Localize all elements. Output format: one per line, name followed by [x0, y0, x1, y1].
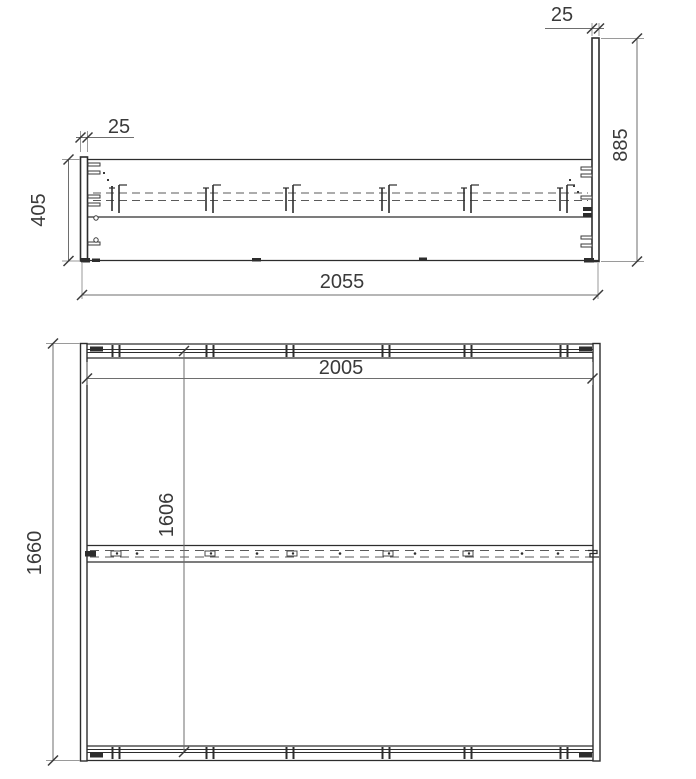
slat-bracket [557, 185, 575, 213]
plan-bottom-rail [87, 746, 593, 761]
dim-label-frame-height: 405 [28, 193, 50, 226]
rail-end-fitting [579, 347, 592, 352]
rail-end-fitting [579, 753, 592, 758]
beam-fastener [205, 551, 215, 556]
slat-bracket-plan [207, 345, 214, 357]
slat-bracket-plan [383, 345, 390, 357]
foot-mark [584, 258, 594, 263]
dim-label-slat-span: 1606 [156, 493, 178, 538]
dim-label-headboard-height: 885 [610, 128, 632, 161]
foot-mark [81, 258, 90, 263]
rail-end-fitting [90, 347, 103, 352]
slat-bracket-plan [113, 345, 120, 357]
dim-headboard-thickness: 25 [545, 4, 604, 36]
slat-bracket [203, 185, 221, 213]
dim-overall-length: 2055 [77, 263, 603, 300]
beam-fastener [287, 551, 297, 556]
headboard-panel [592, 38, 599, 262]
plan-center-beam [85, 546, 599, 563]
dim-label-headboard-thickness: 25 [551, 4, 573, 26]
dim-frame-height: 405 [28, 155, 80, 267]
dim-headboard-height: 885 [601, 34, 644, 267]
dim-label-overall-length: 2055 [320, 271, 365, 293]
footboard-panel [81, 157, 88, 261]
beam-end-fitting [85, 551, 96, 557]
foot-mark [92, 259, 100, 263]
plan-view: 2005 1606 1660 [24, 339, 600, 766]
beam-fastener [463, 551, 473, 556]
slat-bracket [461, 185, 479, 213]
dim-label-inner-length: 2005 [319, 357, 364, 379]
slat-bracket [379, 185, 397, 213]
dim-inner-length: 2005 [82, 357, 598, 385]
rail-end-fitting [90, 753, 103, 758]
plan-top-rail [87, 344, 593, 358]
beam-fastener [383, 551, 393, 556]
foot-mark [252, 258, 261, 262]
headboard-fasteners [569, 167, 592, 247]
footboard-fasteners [88, 163, 113, 245]
dim-label-overall-width: 1660 [24, 531, 46, 576]
foot-mark [419, 258, 427, 262]
side-elevation-view: 25 25 885 405 [28, 4, 644, 300]
technical-drawing-canvas: 25 25 885 405 [0, 0, 696, 779]
dim-slat-span: 1606 [156, 346, 189, 757]
slat-bracket-plan [465, 345, 472, 357]
slat-bracket-plan [561, 345, 568, 357]
dim-overall-width: 1660 [24, 339, 80, 766]
beam-fastener [111, 551, 121, 556]
slat-bracket [283, 185, 301, 213]
bed-frame-drawing: 25 25 885 405 [0, 0, 696, 779]
dim-footboard-thickness: 25 [76, 116, 135, 152]
dim-label-footboard-thickness: 25 [108, 116, 130, 138]
slat-bracket-plan [287, 345, 294, 357]
slat-bracket [109, 185, 127, 213]
